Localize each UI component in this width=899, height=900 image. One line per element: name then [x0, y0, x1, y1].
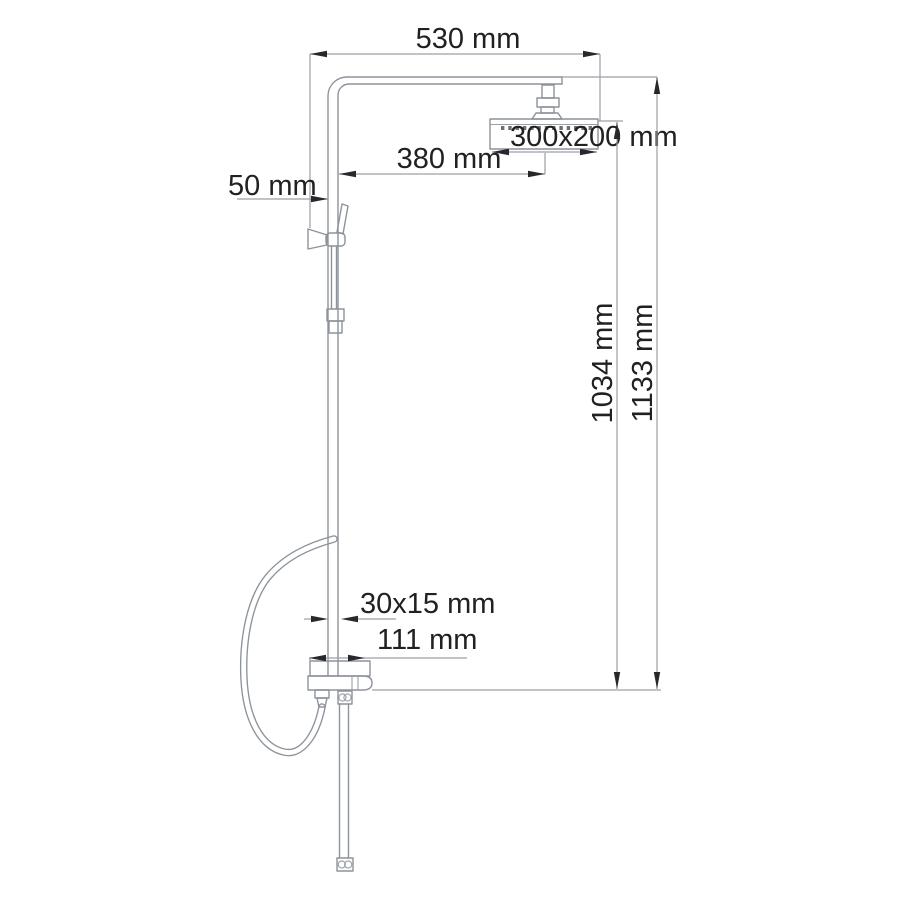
dim-530-arrow-right	[583, 51, 600, 57]
outlet-nut-top	[338, 691, 352, 704]
dim-50: 50 mm	[228, 170, 328, 202]
dim-1133-arrow-up	[654, 77, 660, 94]
dim-head-label: 300x200 mm	[510, 121, 678, 153]
connector-stem	[541, 107, 554, 113]
dim-111-arrow-left	[309, 655, 326, 661]
overhead-connector	[532, 85, 562, 119]
dim-30x15-arrow-left	[311, 616, 328, 622]
dim-1034: 1034 mm	[587, 121, 623, 689]
wand-nut-upper	[327, 309, 344, 321]
wand-nut-lower	[329, 321, 342, 333]
mixer-upper	[310, 661, 370, 676]
dim-530-arrow-left	[310, 51, 327, 57]
dim-1133-label: 1133 mm	[627, 304, 659, 423]
mixer-lower	[308, 676, 372, 690]
dim-380-label: 380 mm	[397, 143, 502, 175]
connector-flange	[532, 113, 562, 119]
dim-111-arrow-right	[348, 655, 365, 661]
shower-diagram: 530 mm 300x200 mm 380 mm 50 mm 1034 mm 1	[0, 0, 899, 900]
dim-380-arrow-right	[528, 171, 545, 177]
dim-111-label: 111 mm	[377, 624, 477, 656]
dim-111: 111 mm	[309, 624, 477, 676]
holder-clamp	[326, 233, 345, 246]
dim-530-label: 530 mm	[416, 23, 521, 55]
wall-bracket	[308, 229, 327, 249]
outlet-pipe	[340, 704, 349, 858]
dim-30x15-label: 30x15 mm	[360, 588, 495, 620]
dim-30x15: 30x15 mm	[304, 588, 495, 622]
dim-380-arrow-left	[339, 171, 356, 177]
hose-connector	[315, 690, 329, 698]
dim-30x15-arrow-right	[341, 616, 358, 622]
dim-50-label: 50 mm	[228, 170, 317, 202]
dim-1034-arrow-down	[614, 672, 620, 689]
dim-1133-arrow-down	[654, 672, 660, 689]
outlet-nut-top-thread-right	[344, 694, 351, 701]
connector-stub	[542, 85, 554, 98]
hose-inner-highlight	[244, 539, 334, 753]
dim-head-size: 300x200 mm	[492, 121, 678, 155]
outlet-pipe-assembly	[337, 691, 353, 871]
drawing-canvas: 530 mm 300x200 mm 380 mm 50 mm 1034 mm 1	[0, 0, 899, 900]
mixer-cap-lines	[352, 676, 358, 690]
hand-shower-hose	[244, 539, 334, 753]
dim-1034-label: 1034 mm	[587, 303, 619, 424]
connector-nut	[537, 98, 559, 107]
hand-shower-wand	[332, 246, 337, 309]
